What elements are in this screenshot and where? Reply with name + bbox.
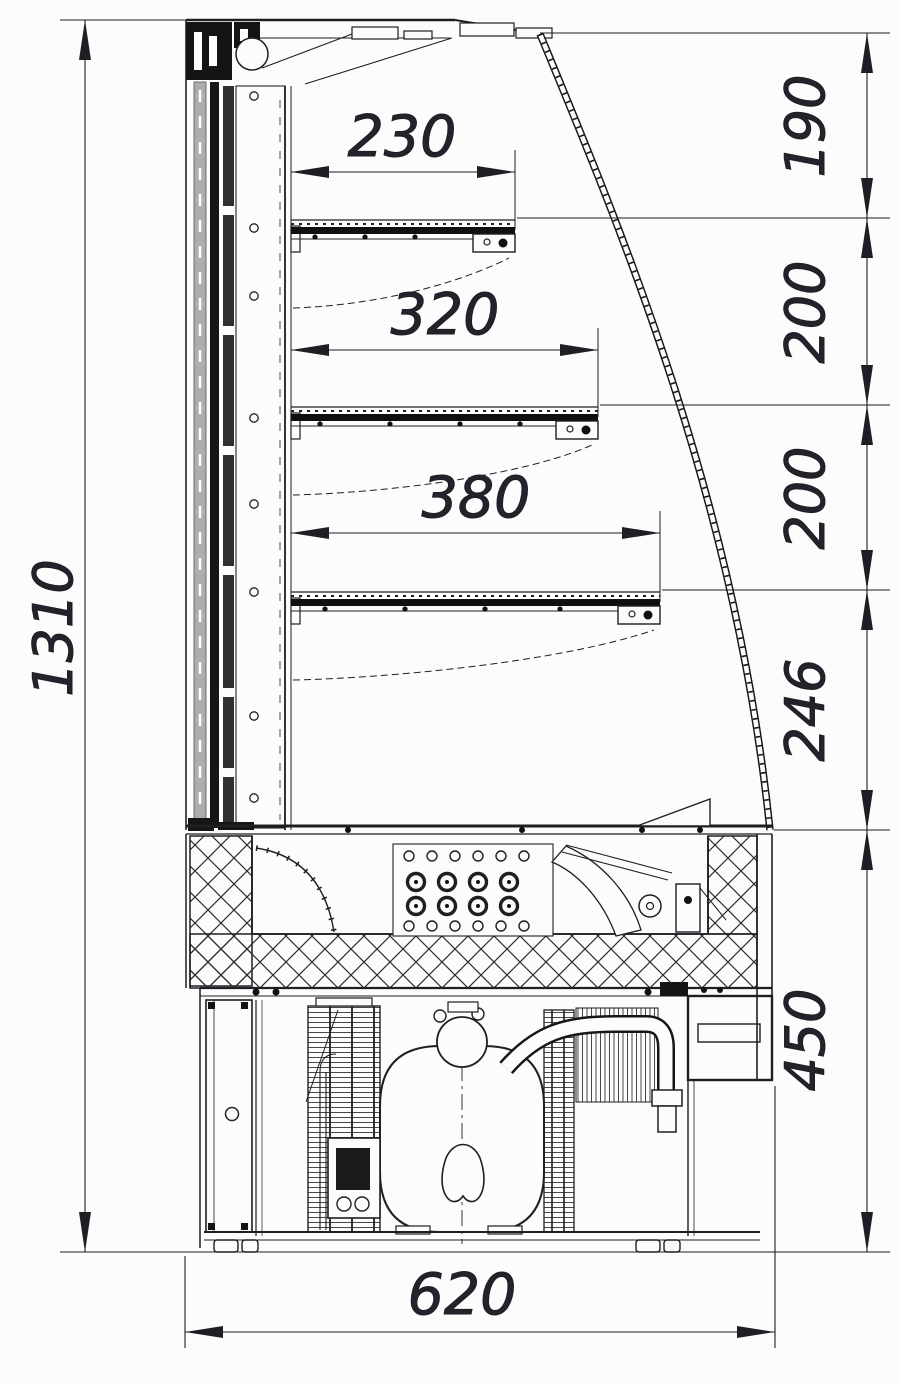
well-fan (552, 845, 726, 936)
dim-label-190: 190 (774, 74, 837, 177)
insulation-bottom (190, 934, 757, 988)
dim-label-380: 380 (422, 465, 531, 531)
dim-label-200-upper: 200 (774, 260, 837, 363)
dimension-overall-height: 1310 (22, 20, 186, 1252)
back-panel (186, 20, 300, 831)
electrical-box (660, 982, 772, 1080)
dim-label-230: 230 (348, 104, 457, 170)
dim-label-200-lower: 200 (774, 446, 837, 549)
display-case (186, 20, 772, 1252)
evaporator-coil (393, 844, 553, 936)
refrigerated-well (186, 799, 772, 988)
cross-section-drawing: 1310 190 200 200 246 450 (0, 0, 900, 1383)
dim-label-450: 450 (774, 988, 837, 1091)
lamp-icon (236, 38, 268, 70)
dim-label-1310: 1310 (22, 559, 85, 696)
dim-label-320: 320 (391, 282, 500, 348)
insulation-right (708, 836, 757, 934)
canopy (186, 20, 552, 84)
gusset-bracket (637, 799, 710, 826)
feet (214, 1240, 680, 1252)
dimension-shelf-230: 230 (291, 104, 515, 230)
air-duct (256, 848, 334, 932)
drawing-canvas: 1310 190 200 200 246 450 (0, 0, 900, 1383)
shelf-bottom (291, 592, 660, 680)
service-door (206, 1000, 252, 1232)
dim-label-246: 246 (774, 658, 837, 761)
dimension-shelf-320: 320 (291, 282, 598, 417)
dim-label-620: 620 (408, 1262, 517, 1328)
dimension-shelf-380: 380 (291, 465, 660, 602)
